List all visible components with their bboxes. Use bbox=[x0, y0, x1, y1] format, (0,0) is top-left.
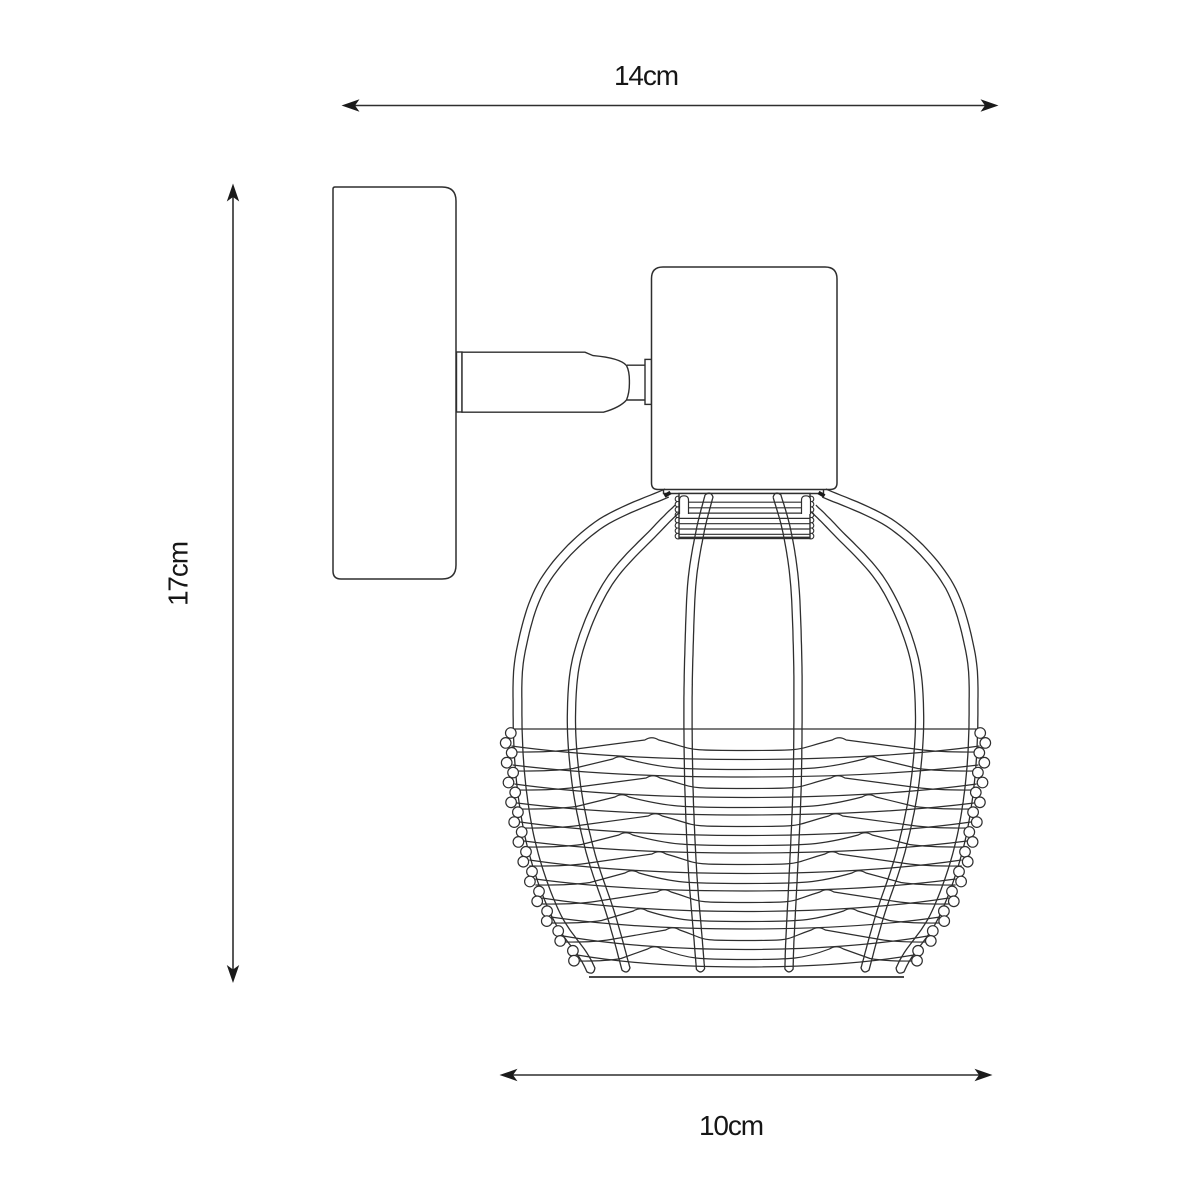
svg-text:10cm: 10cm bbox=[699, 1110, 763, 1141]
svg-text:17cm: 17cm bbox=[163, 542, 194, 606]
svg-text:14cm: 14cm bbox=[614, 60, 678, 91]
